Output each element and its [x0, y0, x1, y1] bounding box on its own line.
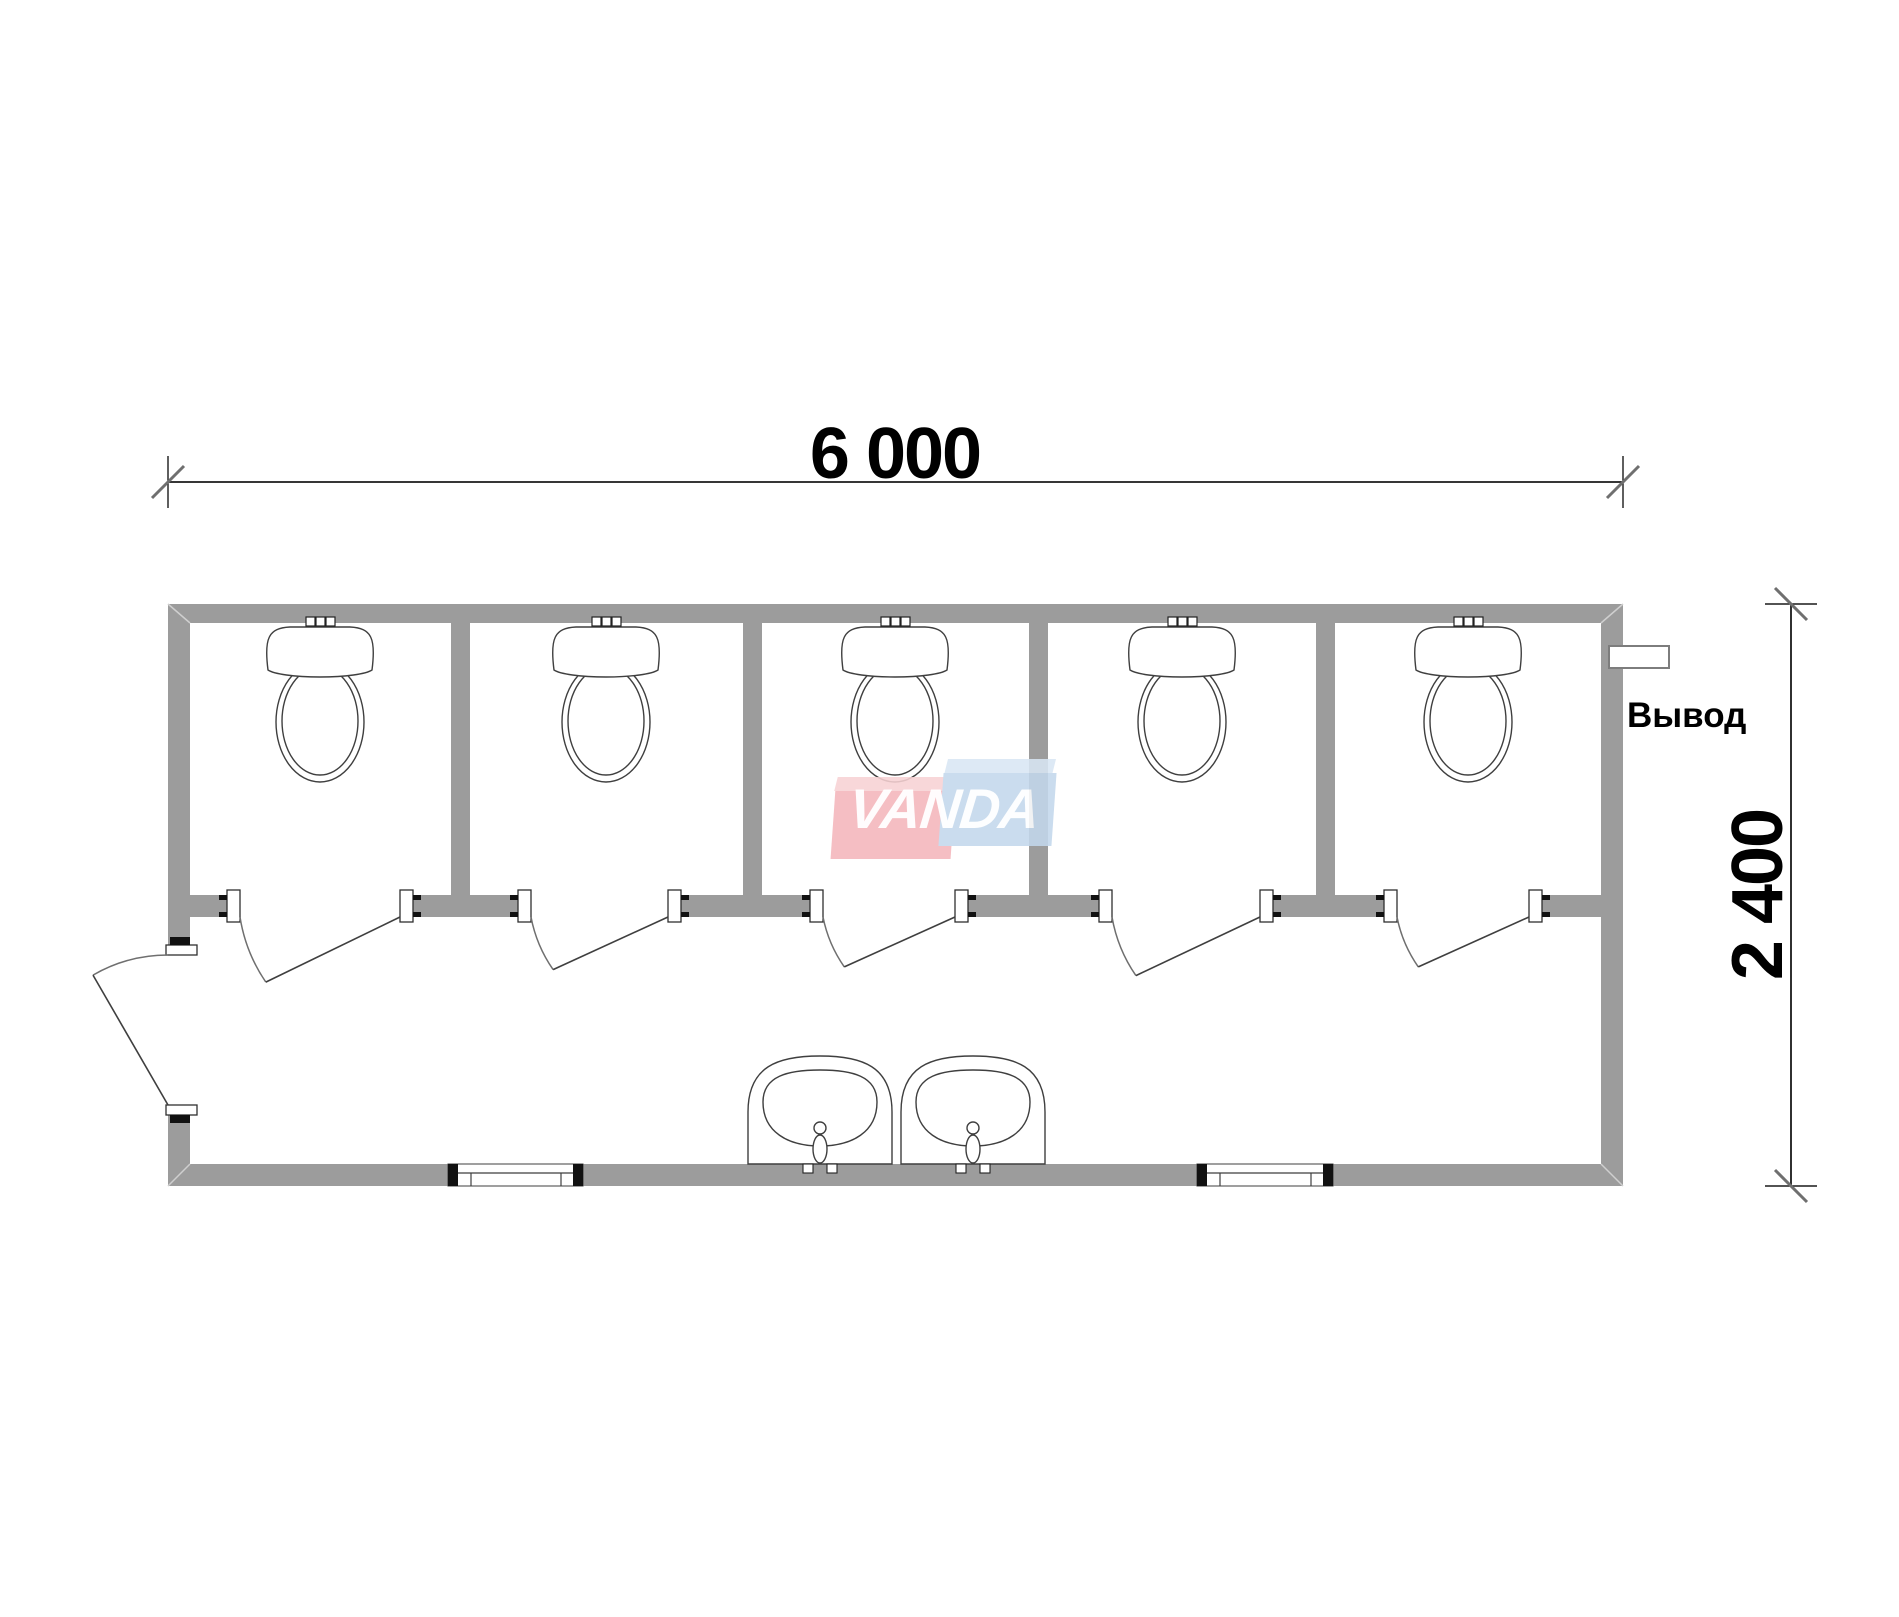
- vanda-watermark: VANDA: [833, 757, 1055, 859]
- stall-1-frame-mark-2: [219, 912, 227, 917]
- bottom-wall-seg-1: [168, 1164, 448, 1186]
- stall-2-frame-mark-1: [510, 895, 518, 900]
- stall-4-frame-mark-4: [1273, 912, 1281, 917]
- toilet-2-flush-button-2: [602, 617, 611, 626]
- stall-1-door-jamb-left: [227, 890, 240, 922]
- stall-partition-2: [743, 623, 762, 895]
- entry-door-jamb-top: [166, 945, 197, 955]
- stall-3-door-swing-arc: [823, 917, 844, 967]
- stall-1-frame-mark-4: [413, 912, 421, 917]
- stall-5-frame-mark-4: [1542, 912, 1550, 917]
- toilet-5-flush-button-2: [1464, 617, 1473, 626]
- sink-1-supply-left: [803, 1164, 813, 1173]
- height-dimension-label: 2 400: [1722, 810, 1794, 980]
- stall-5-frame-mark-2: [1376, 912, 1384, 917]
- stall-2-frame-mark-2: [510, 912, 518, 917]
- entry-door-frame-mark-top: [170, 937, 190, 945]
- stall-2-door-jamb-left: [518, 890, 531, 922]
- toilet-3-flush-button-3: [901, 617, 910, 626]
- stall-5-door-swing-arc: [1397, 917, 1418, 967]
- toilet-2-flush-button-1: [592, 617, 601, 626]
- stall-5-door-jamb-left: [1384, 890, 1397, 922]
- toilet-3-flush-button-2: [891, 617, 900, 626]
- entry-door-panel: [93, 975, 168, 1105]
- entry-door-frame-mark-bottom: [170, 1115, 190, 1123]
- window-2-opening: [1197, 1164, 1333, 1186]
- stall-4-door-swing-arc: [1112, 917, 1136, 976]
- sink-2-faucet-head: [967, 1122, 979, 1134]
- stall-3-door-panel: [844, 917, 955, 967]
- toilet-4-tank: [1129, 627, 1236, 677]
- window-2-cap-right: [1323, 1164, 1333, 1186]
- stall-2-frame-mark-3: [681, 895, 689, 900]
- toilet-2-tank: [553, 627, 660, 677]
- stall-5-door-jamb-right: [1529, 890, 1542, 922]
- toilet-1-bowl-seat: [282, 667, 358, 775]
- toilet-1-flush-button-1: [306, 617, 315, 626]
- toilet-5-tank: [1415, 627, 1522, 677]
- stall-front-wall-seg-5: [1273, 895, 1384, 917]
- stall-3-door-jamb-left: [810, 890, 823, 922]
- toilet-1-tank: [267, 627, 374, 677]
- width-dimension-label: 6 000: [810, 418, 980, 490]
- toilet-5-bowl-seat: [1430, 667, 1506, 775]
- stall-4-frame-mark-2: [1091, 912, 1099, 917]
- stall-2-door-jamb-right: [668, 890, 681, 922]
- stall-3-frame-mark-3: [968, 895, 976, 900]
- stall-partition-4: [1316, 623, 1335, 895]
- floor-plan-page: VANDA 6 000 2 400 Вывод: [0, 0, 1899, 1617]
- window-1-cap-right: [573, 1164, 583, 1186]
- window-2-cap-left: [1197, 1164, 1207, 1186]
- toilet-2-flush-button-3: [612, 617, 621, 626]
- toilet-5-flush-button-1: [1454, 617, 1463, 626]
- stall-5-frame-mark-3: [1542, 895, 1550, 900]
- stall-front-wall-seg-3: [681, 895, 810, 917]
- stall-1-door-jamb-right: [400, 890, 413, 922]
- stall-5-door-panel: [1418, 917, 1529, 967]
- stall-4-door-jamb-right: [1260, 890, 1273, 922]
- toilet-4-bowl-seat: [1144, 667, 1220, 775]
- outlet-stub: [1609, 646, 1669, 668]
- toilet-3-flush-button-1: [881, 617, 890, 626]
- sink-2-faucet-body: [966, 1135, 980, 1163]
- stall-3-frame-mark-4: [968, 912, 976, 917]
- window-1-opening: [448, 1164, 583, 1186]
- stall-2-door-panel: [553, 917, 668, 970]
- stall-1-frame-mark-3: [413, 895, 421, 900]
- sink-2-supply-left: [956, 1164, 966, 1173]
- stall-4-frame-mark-1: [1091, 895, 1099, 900]
- stall-3-frame-mark-1: [802, 895, 810, 900]
- sink-1-supply-right: [827, 1164, 837, 1173]
- window-1-cap-left: [448, 1164, 458, 1186]
- stall-5-frame-mark-1: [1376, 895, 1384, 900]
- toilet-4-flush-button-3: [1188, 617, 1197, 626]
- stall-4-door-jamb-left: [1099, 890, 1112, 922]
- stall-1-door-swing-arc: [240, 917, 266, 982]
- sink-1-faucet-head: [814, 1122, 826, 1134]
- stall-4-door-panel: [1136, 917, 1260, 976]
- stall-1-frame-mark-1: [219, 895, 227, 900]
- stall-1-door-panel: [266, 917, 400, 982]
- right-wall: [1601, 604, 1623, 1186]
- bottom-wall-seg-3: [1333, 1164, 1623, 1186]
- watermark-text: VANDA: [828, 757, 1061, 859]
- toilet-1-flush-button-3: [326, 617, 335, 626]
- toilet-3-tank: [842, 627, 949, 677]
- toilet-2-bowl-seat: [568, 667, 644, 775]
- stall-front-wall-seg-6: [1542, 895, 1601, 917]
- outlet-label: Вывод: [1627, 698, 1746, 733]
- stall-front-wall-seg-4: [968, 895, 1099, 917]
- toilet-4-flush-button-2: [1178, 617, 1187, 626]
- toilet-1-flush-button-2: [316, 617, 325, 626]
- stall-4-frame-mark-3: [1273, 895, 1281, 900]
- stall-2-frame-mark-4: [681, 912, 689, 917]
- entry-door-jamb-bottom: [166, 1105, 197, 1115]
- sink-1-faucet-body: [813, 1135, 827, 1163]
- stall-2-door-swing-arc: [531, 917, 553, 970]
- sink-2-supply-right: [980, 1164, 990, 1173]
- stall-partition-1: [451, 623, 470, 895]
- entry-door-swing-arc: [93, 955, 168, 975]
- stall-3-door-jamb-right: [955, 890, 968, 922]
- bottom-wall-seg-2: [583, 1164, 1197, 1186]
- stall-front-wall-seg-2: [413, 895, 518, 917]
- toilet-5-flush-button-3: [1474, 617, 1483, 626]
- stall-3-frame-mark-2: [802, 912, 810, 917]
- toilet-4-flush-button-1: [1168, 617, 1177, 626]
- left-wall-upper: [168, 604, 190, 945]
